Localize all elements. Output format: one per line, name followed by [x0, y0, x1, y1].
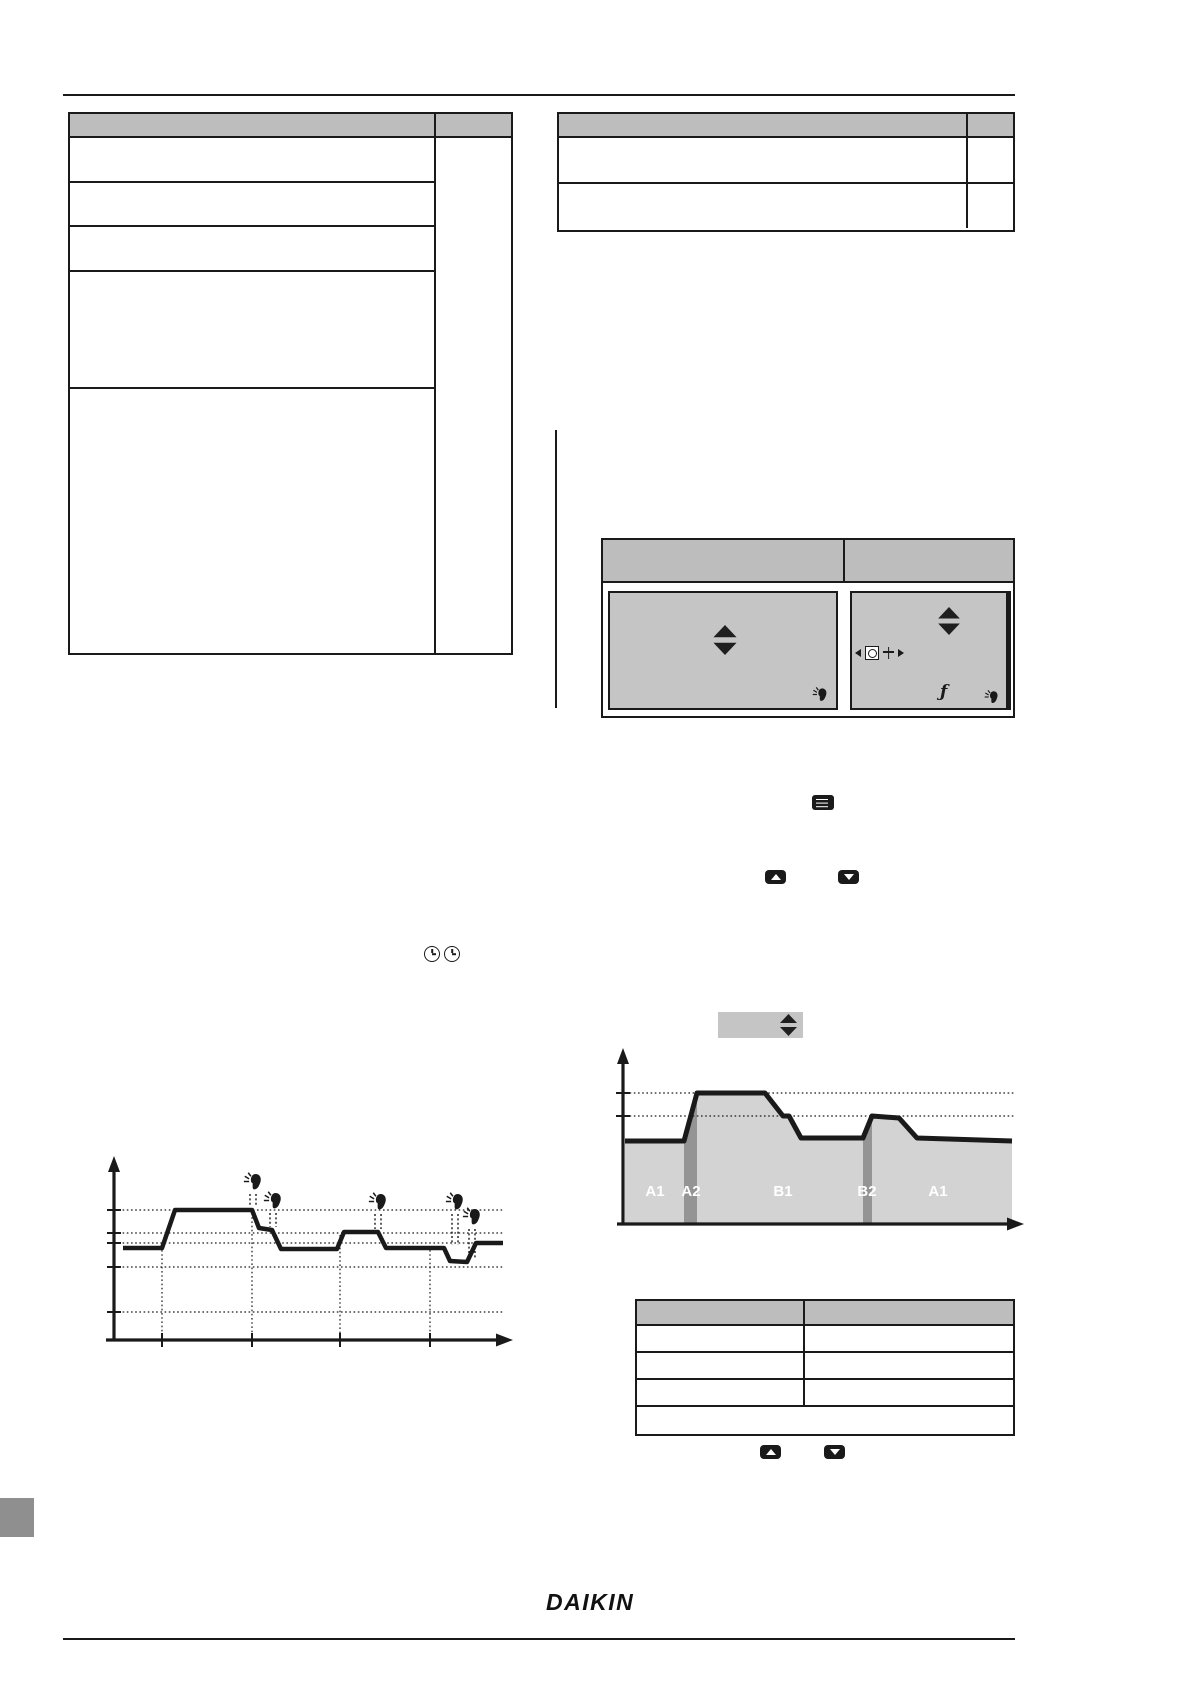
- clock-icon: [424, 946, 440, 962]
- header-cell: [637, 1301, 805, 1324]
- table-row: [70, 138, 434, 183]
- table-cell: [637, 1380, 805, 1405]
- table-cell: [559, 138, 968, 182]
- zone-label: A2: [681, 1183, 700, 1200]
- header-rule: [63, 94, 1015, 96]
- zone-label: A1: [928, 1183, 947, 1200]
- table-row: [637, 1326, 1013, 1353]
- controller-setpoint-screen-figure: ƒ: [850, 591, 1011, 710]
- menu-button-icon: [812, 795, 834, 810]
- table-cell: [805, 1353, 1013, 1378]
- zone-label: B1: [773, 1183, 792, 1200]
- table-top-right-header: [559, 114, 1013, 138]
- table-cell: [559, 184, 968, 228]
- table-row: [70, 183, 434, 227]
- table-top-right: [557, 112, 1015, 232]
- table-cell: [637, 1353, 805, 1378]
- schedule-curve: [123, 1210, 503, 1262]
- setpoint-box: [718, 1012, 803, 1038]
- x-axis-arrow: [1007, 1218, 1024, 1231]
- table-cell: [968, 184, 1013, 228]
- table-top-left: [68, 112, 513, 655]
- hand-press-icon: [812, 686, 829, 703]
- table-row: [559, 184, 1013, 228]
- up-down-arrows-icon: [780, 1014, 797, 1036]
- y-axis-arrow: [108, 1156, 120, 1172]
- header-cell: [70, 114, 436, 136]
- left-triangle-icon: [855, 649, 861, 657]
- footer-rule: [63, 1638, 1015, 1640]
- screen-icon-row: [855, 646, 904, 660]
- controller-home-screen-figure: [608, 591, 838, 710]
- table-row: [70, 272, 434, 389]
- table-cell: [805, 1326, 1013, 1351]
- manual-page: ƒ A1A2B1B2A1 DAIKI: [0, 0, 1192, 1685]
- down-button-icon: [824, 1445, 845, 1459]
- clock-box-icon: [865, 646, 879, 660]
- table-top-left-header: [70, 114, 511, 138]
- header-cell: [603, 540, 845, 581]
- schedule-curve: [625, 1093, 1012, 1141]
- table-row: [70, 227, 434, 272]
- table-cell: [637, 1326, 805, 1351]
- table-cell: [968, 138, 1013, 182]
- zone-label: B2: [857, 1183, 876, 1200]
- table-bottom-right-header: [637, 1301, 1013, 1326]
- chart-area-fill: [625, 1093, 1012, 1223]
- thumb-index-marker: [0, 1498, 34, 1537]
- x-axis-arrow: [496, 1334, 513, 1347]
- header-cell: [805, 1301, 1013, 1324]
- revision-bar: [555, 430, 557, 708]
- table-row: [559, 138, 1013, 184]
- up-button-icon: [760, 1445, 781, 1459]
- hand-press-icon: [463, 1208, 480, 1225]
- table-right-column: [436, 138, 511, 655]
- transition-band: [684, 1093, 697, 1223]
- zone-label: A1: [645, 1183, 664, 1200]
- function-glyph: ƒ: [940, 684, 947, 701]
- table-row: [637, 1380, 1013, 1407]
- program-icon: [883, 647, 894, 659]
- table-left-column: [70, 138, 436, 655]
- right-triangle-icon: [898, 649, 904, 657]
- clock-icon: [444, 946, 460, 962]
- hand-press-icon: [446, 1193, 463, 1210]
- y-axis-arrow: [617, 1048, 629, 1064]
- header-cell: [845, 540, 1013, 581]
- header-cell: [559, 114, 968, 136]
- table-row: [70, 389, 434, 655]
- up-down-arrows-icon: [713, 625, 737, 655]
- hand-press-icon: [244, 1173, 261, 1190]
- screen-figures-header: [603, 540, 1013, 583]
- hand-press-icon: [264, 1192, 281, 1209]
- transition-band: [863, 1116, 872, 1223]
- hand-press-icon: [984, 689, 1000, 705]
- header-cell: [436, 114, 511, 136]
- up-button-icon: [765, 870, 786, 884]
- down-button-icon: [838, 870, 859, 884]
- hand-press-icon: [369, 1193, 386, 1210]
- daikin-logo: DAIKIN: [546, 1589, 634, 1616]
- up-down-arrows-icon: [938, 607, 960, 635]
- table-bottom-right: [635, 1299, 1015, 1436]
- table-cell: [805, 1380, 1013, 1405]
- table-row: [637, 1353, 1013, 1380]
- header-cell: [968, 114, 1013, 136]
